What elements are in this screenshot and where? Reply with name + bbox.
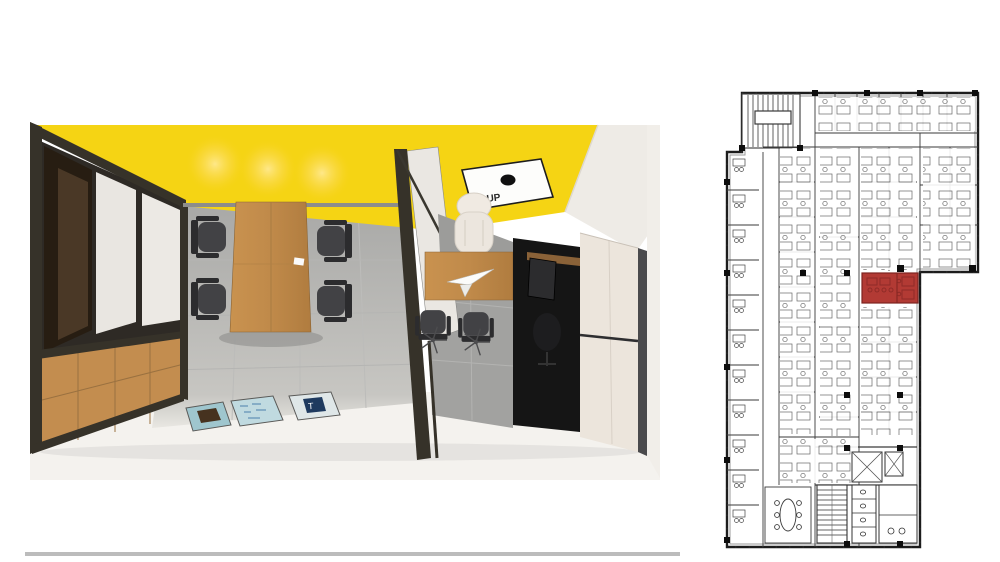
staircase-top bbox=[742, 94, 800, 148]
highlighted-room bbox=[862, 273, 918, 303]
cabinet-trim bbox=[638, 248, 647, 456]
staircase-bottom bbox=[817, 485, 847, 543]
ceiling-light bbox=[238, 139, 298, 199]
floor-plan-panel bbox=[724, 90, 978, 547]
meeting-table bbox=[230, 202, 311, 332]
up-sign-dot bbox=[501, 175, 516, 186]
render-panel: UP bbox=[25, 122, 680, 556]
scene: UP bbox=[0, 0, 1000, 562]
tv-room-chair bbox=[533, 313, 561, 351]
tv-monitor bbox=[528, 258, 556, 300]
floor-shadow bbox=[40, 443, 640, 461]
ceiling-light bbox=[292, 143, 352, 203]
poster-monogram: T bbox=[289, 392, 340, 420]
storage-cabinets bbox=[580, 233, 647, 456]
frosted-pane bbox=[142, 193, 180, 326]
design-presentation: UP bbox=[0, 0, 1000, 562]
paper-sheet bbox=[293, 257, 304, 265]
right-outer-wall bbox=[647, 125, 660, 478]
image-strip-border bbox=[25, 552, 680, 556]
tv-wall bbox=[513, 238, 580, 432]
poster-map bbox=[231, 396, 283, 426]
toilets bbox=[852, 485, 917, 543]
executive-chair bbox=[455, 193, 493, 254]
ceiling-light bbox=[185, 134, 245, 194]
executive-desk bbox=[425, 252, 513, 300]
frosted-pane bbox=[96, 172, 136, 334]
inner-room-door bbox=[58, 168, 88, 340]
